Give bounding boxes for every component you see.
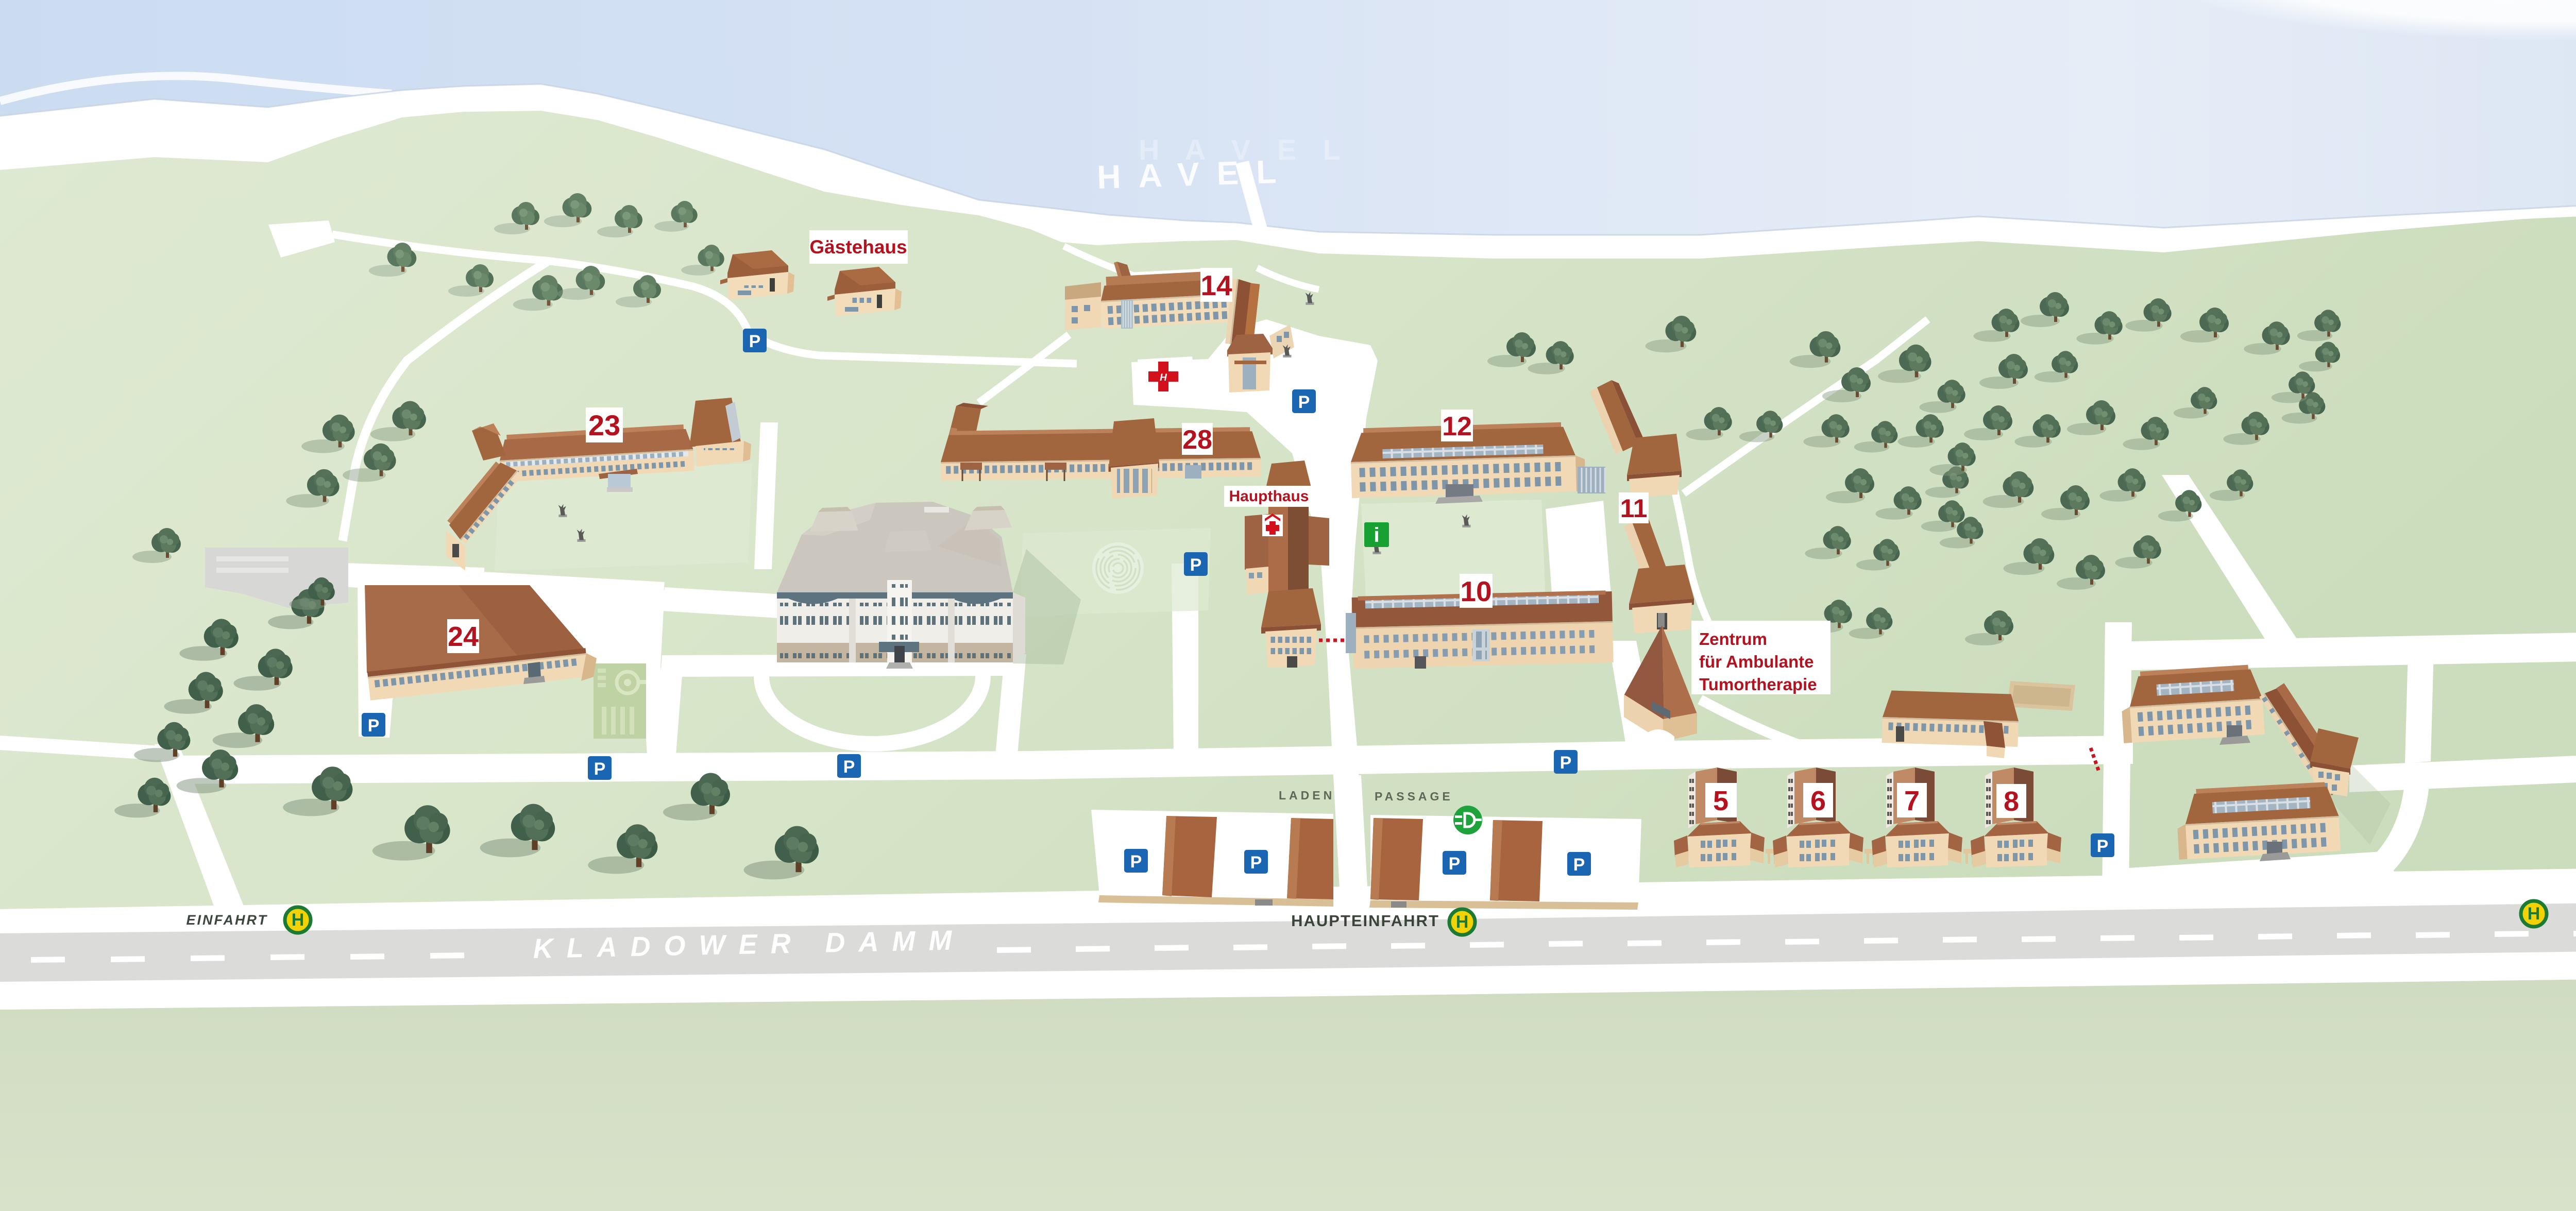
svg-text:Tumortherapie: Tumortherapie <box>1699 675 1817 694</box>
svg-text:12: 12 <box>1442 412 1472 441</box>
svg-text:14: 14 <box>1200 269 1232 301</box>
svg-text:Gästehaus: Gästehaus <box>809 236 907 258</box>
svg-text:28: 28 <box>1182 425 1212 455</box>
svg-text:P: P <box>368 716 380 736</box>
svg-text:24: 24 <box>448 621 479 652</box>
svg-text:für Ambulante: für Ambulante <box>1699 652 1814 671</box>
svg-text:P: P <box>843 757 855 777</box>
svg-text:P: P <box>1130 852 1142 872</box>
svg-text:8: 8 <box>2004 786 2019 817</box>
svg-text:HAVEL: HAVEL <box>1096 152 1294 196</box>
svg-text:P: P <box>1250 853 1262 873</box>
svg-text:P: P <box>1298 393 1310 412</box>
svg-text:P: P <box>1573 855 1585 875</box>
svg-text:P: P <box>2097 837 2109 856</box>
svg-text:LADEN: LADEN <box>1279 789 1335 802</box>
svg-text:H: H <box>292 910 304 930</box>
svg-text:P: P <box>749 332 761 351</box>
svg-text:HAUPTEINFAHRT: HAUPTEINFAHRT <box>1291 912 1439 930</box>
svg-text:5: 5 <box>1713 786 1728 816</box>
svg-text:H: H <box>2528 904 2540 924</box>
svg-text:i: i <box>1374 524 1379 547</box>
svg-text:H: H <box>1160 372 1167 383</box>
svg-text:P: P <box>1560 753 1572 773</box>
svg-text:P: P <box>594 759 606 779</box>
svg-text:PASSAGE: PASSAGE <box>1375 790 1453 803</box>
svg-text:11: 11 <box>1620 494 1648 523</box>
svg-text:H: H <box>1456 912 1469 932</box>
svg-text:P: P <box>1190 555 1202 575</box>
svg-text:Haupthaus: Haupthaus <box>1229 488 1309 505</box>
svg-text:P: P <box>1449 854 1461 874</box>
svg-text:Zentrum: Zentrum <box>1699 629 1767 649</box>
svg-text:EINFAHRT: EINFAHRT <box>186 912 268 928</box>
svg-text:23: 23 <box>588 409 620 441</box>
svg-text:6: 6 <box>1810 786 1826 816</box>
svg-text:10: 10 <box>1460 575 1492 607</box>
svg-text:7: 7 <box>1904 786 1920 816</box>
